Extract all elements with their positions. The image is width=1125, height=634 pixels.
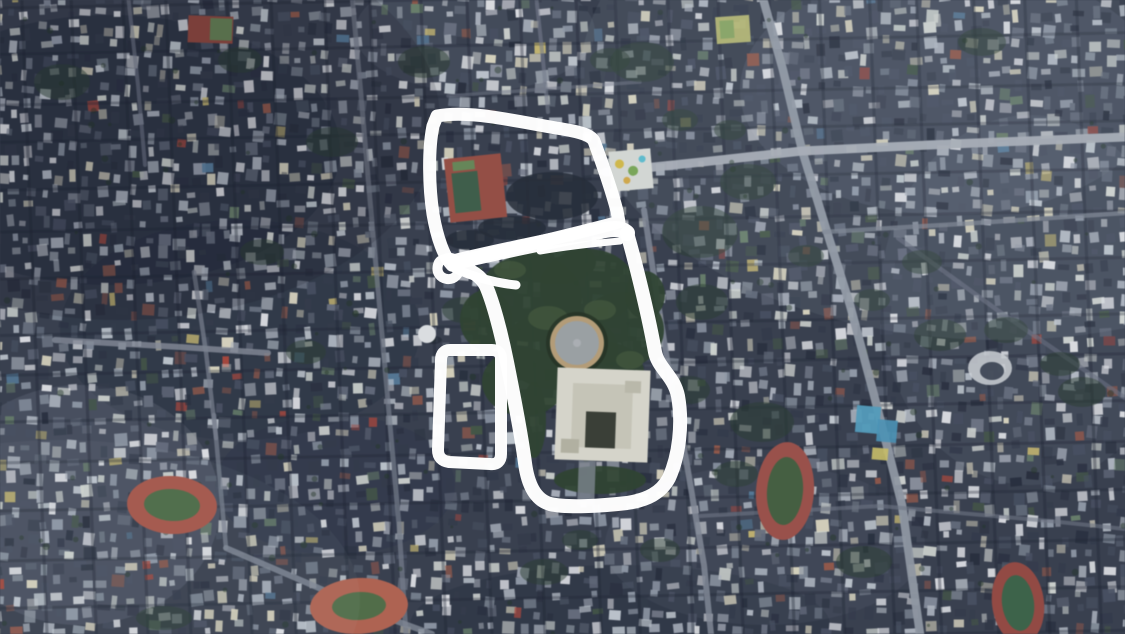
hand-drawn-annotation-overlay [0, 0, 1125, 634]
map-viewport[interactable] [0, 0, 1125, 634]
annotation-strokes [430, 114, 681, 506]
annotation-side-pocket-rectangle [438, 350, 501, 464]
